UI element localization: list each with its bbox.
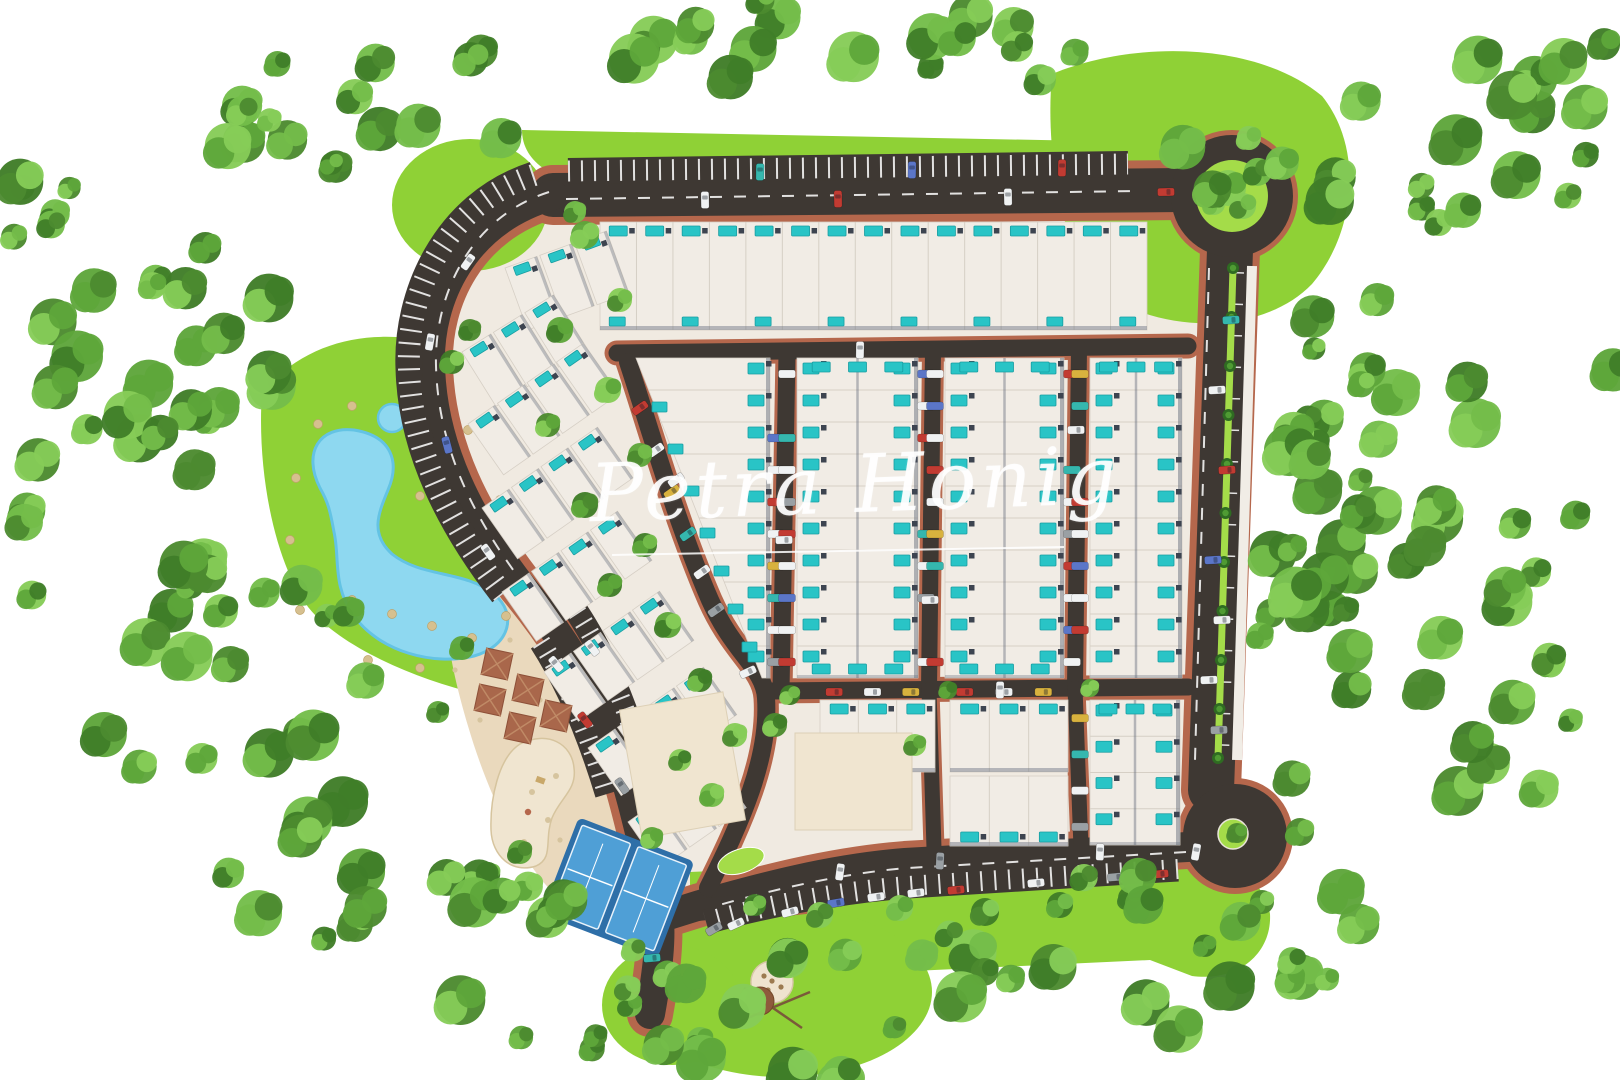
- car: [908, 161, 916, 178]
- car: [1004, 188, 1012, 205]
- south-row-2b: [950, 776, 1068, 846]
- pergola: [504, 712, 536, 744]
- inner-street-v3: [1075, 348, 1079, 688]
- pergola: [481, 648, 513, 680]
- inner-street-h1: [617, 346, 1188, 353]
- car: [1200, 676, 1217, 685]
- car: [775, 536, 792, 544]
- car: [907, 888, 925, 898]
- car: [1208, 386, 1225, 395]
- pergola: [540, 700, 572, 732]
- pergola: [512, 674, 544, 706]
- car: [834, 190, 842, 207]
- car: [947, 885, 965, 895]
- car: [864, 688, 881, 696]
- car: [1218, 466, 1235, 475]
- car: [956, 688, 973, 696]
- car: [921, 596, 938, 604]
- block-c: [927, 358, 1081, 678]
- car: [936, 852, 945, 869]
- car: [1204, 556, 1221, 565]
- car: [1067, 426, 1084, 434]
- inner-street-v2: [929, 350, 933, 690]
- inner-street-v1: [781, 353, 787, 691]
- car: [1035, 688, 1052, 696]
- car: [701, 191, 709, 208]
- car: [643, 953, 661, 962]
- car: [1027, 878, 1045, 888]
- north-avenue: [553, 190, 1184, 195]
- north-terrace: [600, 222, 1147, 330]
- car: [856, 341, 864, 358]
- masterplan-rendering: Petra Honig: [0, 0, 1620, 1080]
- car: [996, 681, 1004, 698]
- car: [1096, 843, 1105, 860]
- block-b: [779, 358, 935, 678]
- south-row-1b: [950, 688, 1068, 772]
- pergola: [474, 684, 506, 716]
- car: [1213, 616, 1230, 625]
- car: [826, 688, 843, 696]
- site-plan-canvas: [0, 0, 1620, 1080]
- car: [902, 688, 919, 696]
- community-building: [795, 733, 912, 830]
- car: [1058, 159, 1066, 176]
- car: [1157, 188, 1174, 196]
- car: [1222, 316, 1239, 325]
- car: [756, 163, 764, 180]
- car: [1210, 726, 1227, 735]
